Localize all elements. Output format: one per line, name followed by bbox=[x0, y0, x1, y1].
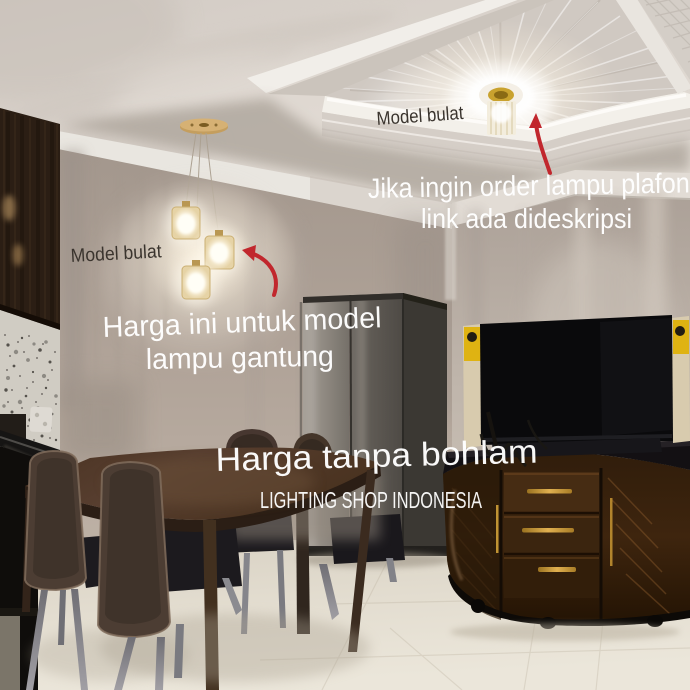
svg-text:link ada dideskripsi: link ada dideskripsi bbox=[421, 203, 632, 234]
svg-text:Jika ingin order lampu plafon: Jika ingin order lampu plafon bbox=[368, 167, 690, 204]
svg-text:lampu gantung: lampu gantung bbox=[146, 341, 335, 376]
svg-text:LIGHTING SHOP INDONESIA: LIGHTING SHOP INDONESIA bbox=[260, 487, 482, 513]
